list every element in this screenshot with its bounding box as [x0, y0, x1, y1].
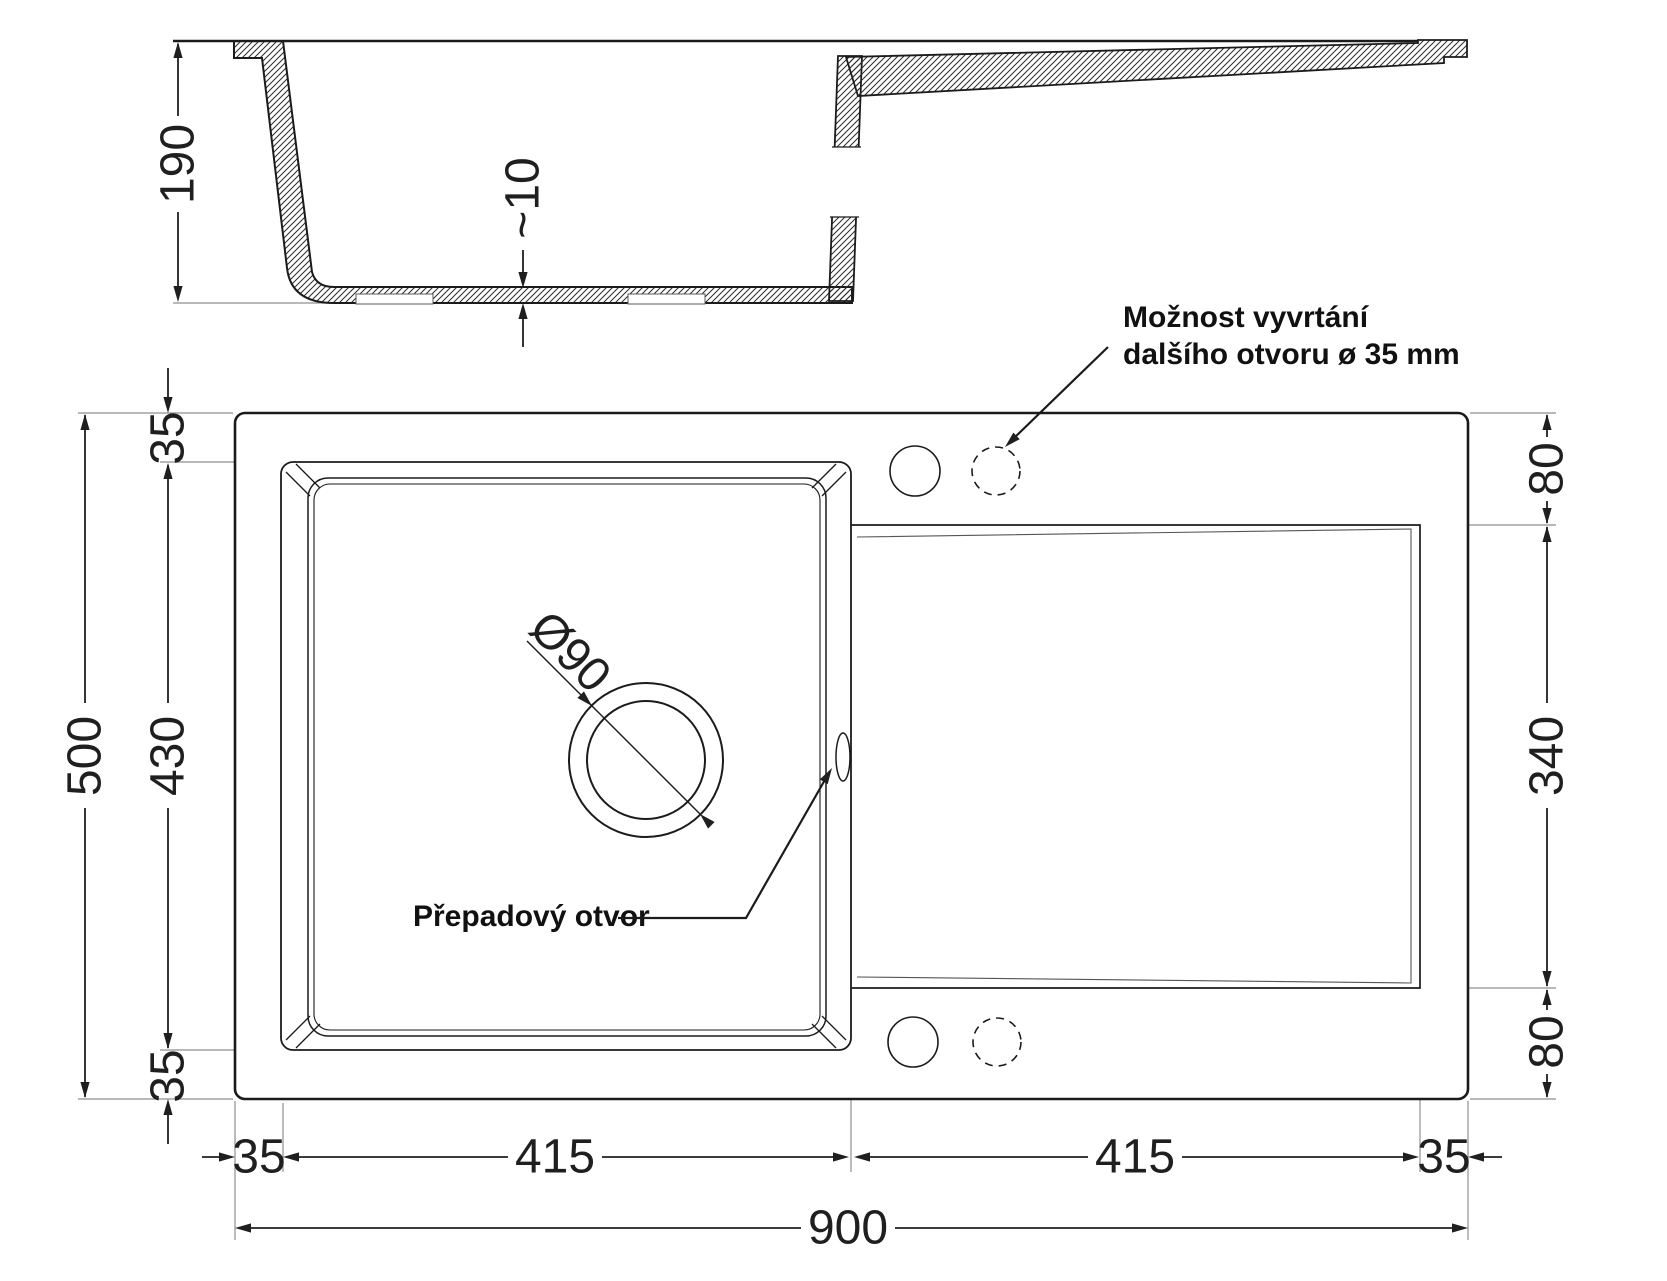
overflow-gap — [830, 147, 860, 217]
dim-430: 430 — [142, 463, 195, 1049]
dim-text-35: 35 — [142, 411, 195, 464]
dim-text-35: 35 — [232, 1131, 285, 1184]
dim-500: 500 — [59, 414, 112, 1098]
dim-80-bottom: 80 — [1521, 989, 1574, 1098]
bottom-recess — [356, 294, 433, 304]
dim-80-top: 80 — [1521, 414, 1574, 524]
dim-415-drainboard: 415 — [854, 1131, 1419, 1184]
dim-text-35: 35 — [1417, 1131, 1470, 1184]
dim-10: ~10 — [497, 157, 550, 347]
technical-drawing: 190 ~10 — [0, 0, 1667, 1281]
dim-35-top: 35 — [142, 368, 195, 465]
dim-text-340: 340 — [1521, 716, 1574, 796]
dim-190: 190 — [152, 42, 205, 302]
dim-415-bowl: 415 — [283, 1131, 849, 1184]
dim-text-190: 190 — [152, 124, 205, 204]
dim-text-900: 900 — [808, 1202, 888, 1255]
dim-text-415: 415 — [515, 1131, 595, 1184]
dim-35-bottom: 35 — [142, 1049, 195, 1144]
extra-hole-note-line1: Možnost vyvrtání — [1123, 301, 1370, 334]
dim-text-500: 500 — [59, 716, 112, 796]
plan-view: Ø90 — [78, 413, 1556, 1240]
dim-text-80: 80 — [1521, 1015, 1574, 1068]
dim-35-left: 35 — [202, 1131, 286, 1184]
dim-340: 340 — [1521, 526, 1574, 987]
dim-text-80: 80 — [1521, 442, 1574, 495]
dim-text-10: ~10 — [497, 157, 550, 238]
dim-900: 900 — [235, 1202, 1468, 1255]
bottom-recess — [628, 294, 705, 304]
extra-hole-note-line2: dalšího otvoru ø 35 mm — [1123, 338, 1460, 371]
overflow-hole — [836, 733, 850, 781]
dim-35-right: 35 — [1417, 1131, 1502, 1184]
dim-text-415: 415 — [1095, 1131, 1175, 1184]
dim-text-35: 35 — [142, 1049, 195, 1102]
overflow-label: Přepadový otvor — [413, 900, 650, 933]
drainboard-cross-section — [846, 40, 1467, 96]
dim-text-430: 430 — [142, 716, 195, 796]
